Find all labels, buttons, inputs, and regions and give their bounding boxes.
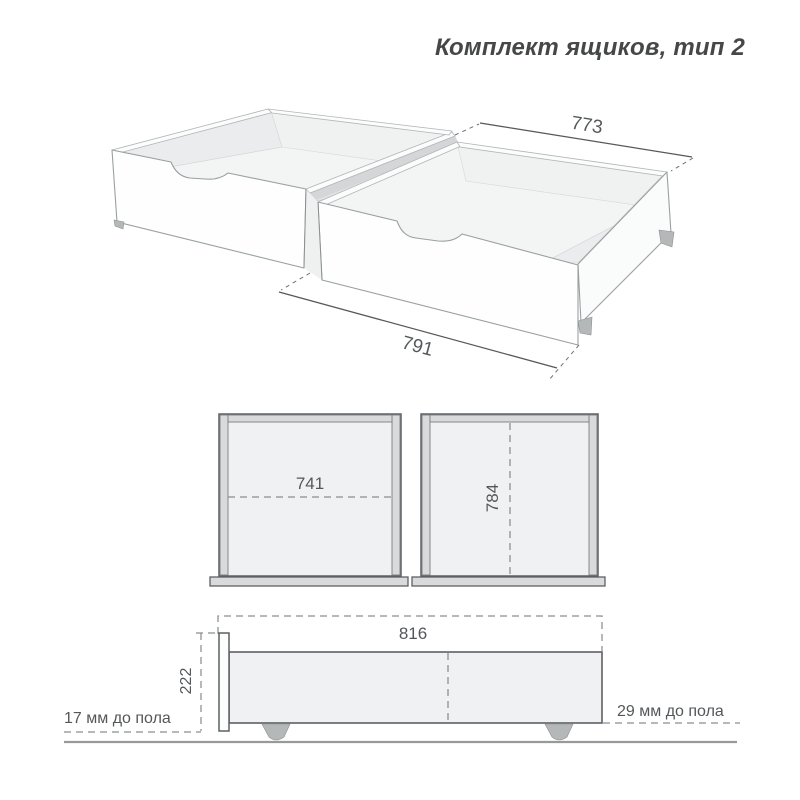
left-view-left-wall [220, 415, 228, 575]
dim-773-extension-left [455, 124, 479, 135]
clearance-29-label: 29 мм до пола [617, 703, 724, 720]
right-view-right-wall [589, 415, 597, 575]
clearance-17-label: 17 мм до пола [64, 710, 171, 727]
side-view-right-caster [545, 724, 573, 740]
right-drawer-rear-caster [659, 230, 674, 247]
perspective-view: 773 791 [112, 109, 693, 380]
side-view-front-panel [219, 633, 229, 731]
right-view-front-panel-strip [412, 577, 605, 586]
dim-222-label: 222 [178, 668, 195, 695]
left-view-box [219, 414, 401, 576]
side-view: 816 222 17 мм до пола 29 мм до пола [64, 616, 740, 742]
right-drawer-front-caster [578, 317, 592, 335]
dim-816-label: 816 [399, 624, 427, 643]
drawing-canvas: 773 791 741 784 816 [0, 0, 800, 800]
side-view-body [229, 652, 602, 723]
right-view-top-wall [430, 415, 589, 422]
dim-773-extension-right [671, 158, 693, 171]
dim-791-label: 791 [399, 332, 435, 360]
left-view-front-panel-strip [210, 577, 408, 586]
left-view-right-wall [392, 415, 400, 575]
dim-791-extension-left [281, 273, 310, 290]
right-view-left-wall [422, 415, 430, 575]
dim-784-label: 784 [483, 484, 502, 512]
top-view-right: 784 [412, 414, 605, 586]
left-view-top-wall [228, 415, 392, 422]
top-view-left: 741 [210, 414, 408, 586]
dim-791-extension-right [549, 345, 579, 380]
dim-741-label: 741 [296, 474, 324, 493]
side-view-left-caster [262, 724, 290, 740]
dim-773-label: 773 [570, 113, 605, 139]
